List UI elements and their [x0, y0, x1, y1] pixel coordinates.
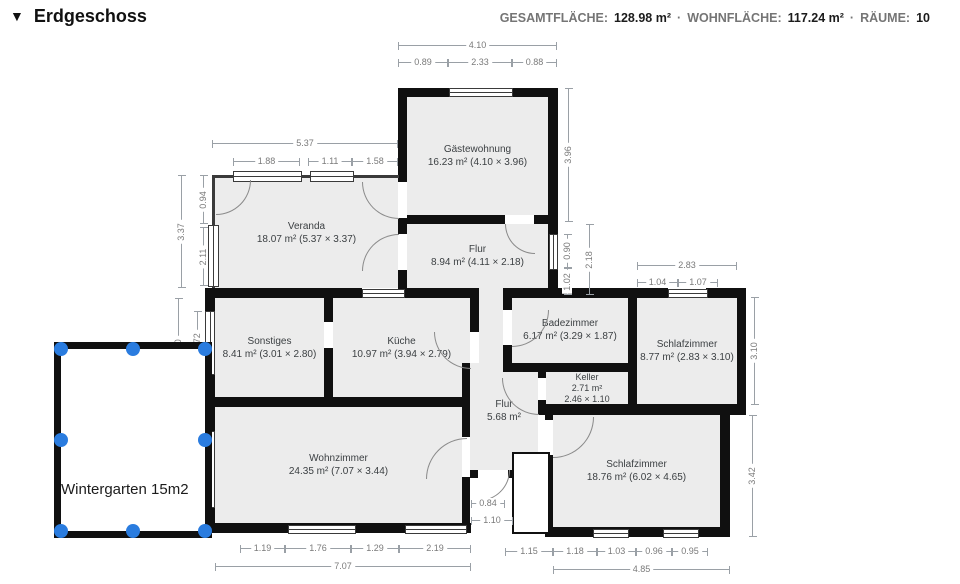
resize-handle-top-right[interactable] — [198, 342, 212, 356]
dim-schlafr-hoehe: 3.10 — [754, 297, 755, 405]
wall-segment[interactable] — [403, 288, 479, 298]
dim-veranda-breite: 5.37 — [212, 143, 398, 144]
dim-veranda-tuer: 0.94 — [203, 175, 204, 224]
room-schlafzimmer-rechts[interactable]: Schlafzimmer8.77 m² (2.83 × 3.10) — [637, 297, 737, 404]
dim-flur-hoehe: 2.18 — [589, 224, 590, 295]
window[interactable] — [549, 234, 558, 270]
dim-flur-fenster: 0.90 — [567, 234, 568, 268]
room-name: Keller — [564, 372, 609, 383]
dim-flur-unten: 1.02 — [567, 268, 568, 295]
room-flur-klein-corridor[interactable] — [479, 287, 503, 363]
window[interactable] — [310, 171, 354, 182]
dim-sued2: 1.76 — [285, 548, 351, 549]
dim-veranda-f3: 1.58 — [352, 161, 398, 162]
dim-gaeste-links: 0.89 — [398, 62, 448, 63]
wall-segment[interactable] — [470, 470, 478, 478]
dim-schlafr-breite: 2.83 — [637, 265, 737, 266]
room-name: Wohnzimmer — [289, 452, 388, 465]
wall-segment[interactable] — [538, 372, 546, 378]
resize-handle-mid-left[interactable] — [54, 433, 68, 447]
dim-sued7: 1.03 — [597, 551, 636, 552]
wall-segment[interactable] — [503, 288, 668, 298]
dim-eingang-breite: 1.10 — [471, 520, 513, 521]
room-details: 2.46 × 1.10 — [564, 394, 609, 405]
room-details: 18.76 m² (6.02 × 4.65) — [587, 471, 686, 484]
wall-segment[interactable] — [205, 397, 470, 407]
dim-schlafu-breite: 4.85 — [553, 569, 730, 570]
wall-segment[interactable] — [324, 348, 333, 397]
room-details: 8.77 m² (2.83 × 3.10) — [640, 351, 734, 364]
wall-segment[interactable] — [324, 298, 333, 322]
dim-gaeste-breite: 4.10 — [398, 45, 557, 46]
floorplan-canvas[interactable]: Gästewohnung16.23 m² (4.10 × 3.96) Veran… — [0, 0, 960, 584]
wall-segment[interactable] — [398, 88, 407, 182]
wall-segment[interactable] — [398, 218, 407, 234]
room-details: 24.35 m² (7.07 × 3.44) — [289, 465, 388, 478]
floorplan-app: ▼ Erdgeschoss GESAMTFLÄCHE: 128.98 m² · … — [0, 0, 960, 584]
wall-segment[interactable] — [628, 297, 637, 404]
room-gaestewohnung[interactable]: Gästewohnung16.23 m² (4.10 × 3.96) — [407, 97, 548, 215]
wall-segment[interactable] — [503, 345, 512, 363]
dim-schlafr-links: 1.04 — [637, 282, 678, 283]
window[interactable] — [288, 525, 356, 534]
window[interactable] — [668, 289, 708, 298]
room-details: 16.23 m² (4.10 × 3.96) — [428, 156, 527, 169]
resize-handle-mid-right[interactable] — [198, 433, 212, 447]
wall-segment[interactable] — [534, 215, 548, 224]
window[interactable] — [362, 289, 405, 298]
wall-segment[interactable] — [470, 297, 479, 332]
wall-segment[interactable] — [503, 297, 512, 310]
dim-veranda-f1: 1.88 — [233, 161, 300, 162]
room-wohnzimmer[interactable]: Wohnzimmer24.35 m² (7.07 × 3.44) — [215, 407, 462, 523]
room-details: 8.94 m² (4.11 × 2.18) — [431, 256, 524, 269]
dim-schlafu-hoehe: 3.42 — [752, 415, 753, 537]
dim-schlafr-fenster: 1.07 — [678, 282, 718, 283]
window[interactable] — [208, 225, 219, 287]
resize-handle-bottom-mid[interactable] — [126, 524, 140, 538]
dim-sued1: 1.19 — [240, 548, 285, 549]
wall-segment[interactable] — [407, 215, 505, 224]
room-keller[interactable]: Keller2.71 m²2.46 × 1.10 — [546, 372, 628, 404]
dim-sued3: 1.29 — [351, 548, 399, 549]
window[interactable] — [663, 529, 699, 538]
dim-wohn-breite: 7.07 — [215, 566, 471, 567]
resize-handle-bottom-left[interactable] — [54, 524, 68, 538]
room-name: Schlafzimmer — [587, 458, 686, 471]
room-details: 8.41 m² (3.01 × 2.80) — [223, 348, 317, 361]
wall-segment[interactable] — [462, 363, 470, 437]
window[interactable] — [593, 529, 629, 538]
dim-sued6: 1.18 — [553, 551, 597, 552]
dim-sued9: 0.95 — [672, 551, 708, 552]
room-details: 18.07 m² (5.37 × 3.37) — [257, 233, 356, 246]
wintergarten-label: Wintergarten 15m2 — [61, 481, 189, 498]
window[interactable] — [449, 88, 513, 97]
dim-sued5: 1.15 — [505, 551, 553, 552]
dim-veranda-fenster: 2.11 — [203, 227, 204, 286]
room-name: Schlafzimmer — [640, 338, 734, 351]
window[interactable] — [405, 525, 467, 534]
dim-eingang-tuer: 0.84 — [471, 503, 505, 504]
wall-segment[interactable] — [720, 415, 730, 537]
wall-segment[interactable] — [503, 363, 637, 372]
door-arc[interactable] — [479, 470, 510, 501]
room-details: 5.68 m² — [487, 411, 521, 424]
wall-segment[interactable] — [545, 527, 730, 537]
resize-handle-top-left[interactable] — [54, 342, 68, 356]
room-details: 10.97 m² (3.94 × 2.79) — [352, 348, 451, 361]
room-sonstiges[interactable]: Sonstiges8.41 m² (3.01 × 2.80) — [215, 298, 324, 397]
room-name: Flur — [431, 243, 524, 256]
wall-segment[interactable] — [462, 477, 470, 523]
wall-segment[interactable] — [545, 415, 553, 420]
room-name: Sonstiges — [223, 335, 317, 348]
dim-gaeste-rechts: 0.88 — [512, 62, 557, 63]
resize-handle-top-mid[interactable] — [126, 342, 140, 356]
wall-segment[interactable] — [737, 288, 746, 415]
room-details: 2.71 m² — [564, 383, 609, 394]
dim-sued8: 0.96 — [636, 551, 672, 552]
resize-handle-bottom-right[interactable] — [198, 524, 212, 538]
room-name: Veranda — [257, 220, 356, 233]
room-name: Gästewohnung — [428, 143, 527, 156]
dim-gaeste-fenster: 2.33 — [448, 62, 512, 63]
wintergarten-object[interactable]: Wintergarten 15m2 — [54, 342, 212, 538]
dim-veranda-hoehe: 3.37 — [181, 175, 182, 288]
wall-segment[interactable] — [205, 288, 362, 298]
dim-sued4: 2.19 — [399, 548, 471, 549]
entrance-steps[interactable] — [512, 452, 550, 534]
dim-veranda-f2: 1.11 — [308, 161, 352, 162]
wall-segment[interactable] — [538, 404, 746, 415]
dim-gaeste-hoehe: 3.96 — [568, 88, 569, 222]
